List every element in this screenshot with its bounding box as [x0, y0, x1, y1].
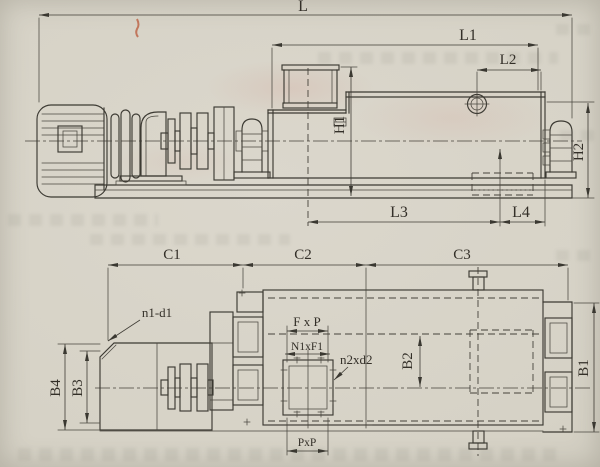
- electric-motor: [37, 105, 107, 197]
- scanned-drawing-page: L L1 L2 H1 H2 L3 L4: [0, 0, 600, 467]
- end-bearing-plan: [543, 302, 572, 432]
- drive-end-cover-plate: [214, 107, 234, 180]
- dim-label-L4: L4: [512, 204, 530, 221]
- side-elevation-view: L L1 L2 H1 H2 L3 L4: [25, 0, 594, 226]
- dim-label-n2xd2: n2xd2: [340, 352, 373, 367]
- terminal-box: [58, 126, 82, 152]
- dim-label-L2: L2: [500, 52, 517, 68]
- lifting-eye-circle: [465, 92, 489, 116]
- discharge-outlet-hidden: [472, 173, 533, 195]
- dim-label-B1: B1: [576, 359, 592, 377]
- dim-label-FxP: F x P: [293, 314, 320, 329]
- drive-base-plate: [100, 343, 212, 430]
- dim-label-H1: H1: [332, 116, 348, 134]
- dim-label-L1: L1: [459, 27, 477, 44]
- dim-label-PxP: PxP: [298, 437, 317, 449]
- dim-label-L3: L3: [390, 204, 408, 221]
- plan-coupling: [161, 364, 213, 411]
- dim-label-C3: C3: [453, 247, 471, 263]
- dim-label-C2: C2: [294, 247, 312, 263]
- dim-label-n1-d1: n1-d1: [142, 305, 172, 320]
- discharge-outlet-plan: [470, 330, 533, 393]
- dim-label-B2: B2: [400, 352, 416, 370]
- conveyor-trough: [268, 65, 545, 195]
- plan-view: C1 C2 C3 B4 B3 B2 B1 F x P N1xF1: [48, 247, 599, 456]
- plan-end-housing: [210, 292, 263, 410]
- plan-view-dimensions: C1 C2 C3 B4 B3 B2 B1 F x P N1xF1: [48, 247, 599, 455]
- technical-drawing: L L1 L2 H1 H2 L3 L4: [0, 0, 600, 467]
- red-pen-mark: [136, 19, 138, 37]
- dim-label-C1: C1: [163, 247, 181, 263]
- dim-label-N1xF1: N1xF1: [291, 341, 323, 353]
- dim-label-L: L: [298, 0, 308, 15]
- dim-label-B4: B4: [48, 379, 64, 397]
- inlet-hopper: [282, 65, 339, 103]
- dim-label-B3: B3: [70, 379, 86, 397]
- intermediate-bearing: [234, 119, 270, 178]
- dim-label-H2: H2: [571, 143, 587, 161]
- hopper-base-flange: [283, 103, 337, 108]
